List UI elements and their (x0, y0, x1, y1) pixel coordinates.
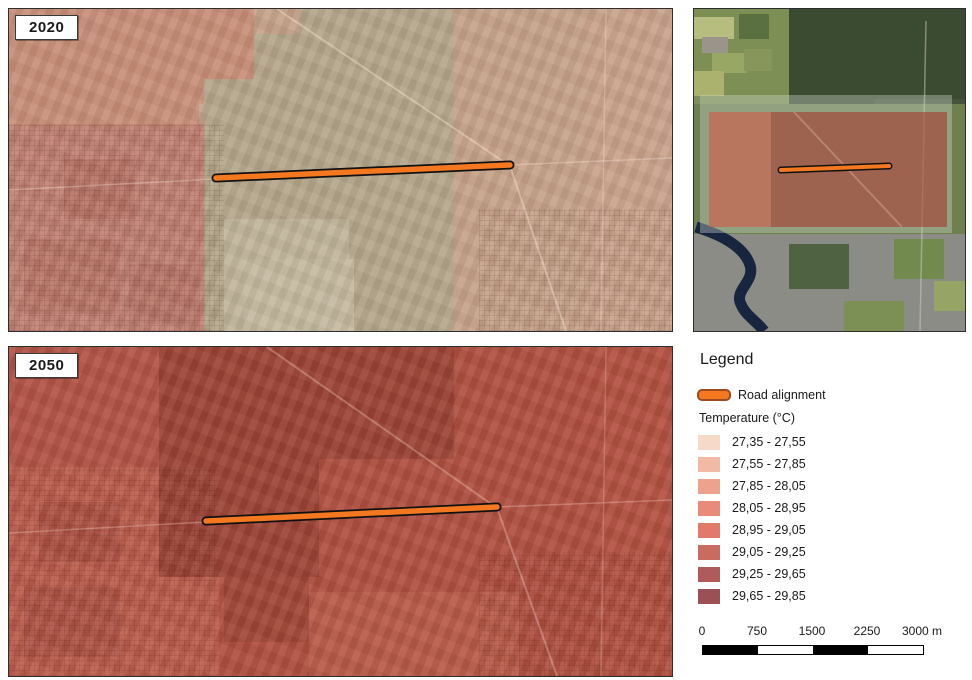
field-patch (694, 71, 724, 96)
green-patch (789, 244, 849, 289)
overview-map (693, 8, 966, 332)
field-patch (694, 17, 734, 39)
temperature-class-list: 27,35 - 27,5527,55 - 27,8527,85 - 28,052… (698, 431, 806, 607)
temperature-range-label: 27,55 - 27,85 (732, 457, 806, 471)
temperature-range-label: 29,25 - 29,65 (732, 567, 806, 581)
scalebar-label: 0 (699, 624, 706, 638)
scalebar-label: 3000 m (902, 624, 942, 638)
temperature-swatch (698, 457, 720, 472)
road-alignment (206, 507, 497, 521)
road-line (601, 9, 606, 331)
legend-class-row: 29,05 - 29,25 (698, 541, 806, 563)
legend-road-row: Road alignment (697, 388, 826, 402)
legend-class-row: 27,85 - 28,05 (698, 475, 806, 497)
scalebar-label: 2250 (854, 624, 881, 638)
scalebar-segment (703, 646, 758, 654)
map-year-label-2050: 2050 (15, 353, 78, 378)
scalebar-segment (813, 646, 868, 654)
temperature-swatch (698, 589, 720, 604)
field-patch (844, 301, 904, 331)
field-patch (739, 14, 769, 39)
temperature-swatch (698, 501, 720, 516)
temperature-swatch (698, 567, 720, 582)
temperature-range-label: 29,05 - 29,25 (732, 545, 806, 559)
road-alignment-symbol (697, 389, 731, 401)
temperature-section-label: Temperature (°C) (699, 411, 795, 425)
legend-class-row: 28,95 - 29,05 (698, 519, 806, 541)
overview-map-layer (694, 9, 965, 331)
field-patch (934, 281, 965, 311)
temperature-range-label: 27,85 - 28,05 (732, 479, 806, 493)
legend-class-row: 27,55 - 27,85 (698, 453, 806, 475)
scalebar-label: 750 (747, 624, 767, 638)
road-alignment (216, 165, 510, 178)
map-2020: 2020 (8, 8, 673, 332)
figure-canvas: 2020 (0, 0, 972, 680)
field-patch (712, 53, 747, 73)
legend-class-row: 29,65 - 29,85 (698, 585, 806, 607)
map-year-label-2020: 2020 (15, 15, 78, 40)
temperature-swatch (698, 545, 720, 560)
legend-title: Legend (700, 351, 753, 369)
study-area-urban-tint (709, 112, 771, 227)
temperature-range-label: 28,95 - 29,05 (732, 523, 806, 537)
legend-class-row: 29,25 - 29,65 (698, 563, 806, 585)
scalebar-label: 1500 (799, 624, 826, 638)
temperature-range-label: 27,35 - 27,55 (732, 435, 806, 449)
field-patch (744, 49, 772, 71)
road-alignment-label: Road alignment (738, 388, 826, 402)
green-patch (894, 239, 944, 279)
map-2050-roads-layer (9, 347, 672, 676)
scalebar-segment (758, 646, 813, 654)
temperature-swatch (698, 479, 720, 494)
temperature-swatch (698, 523, 720, 538)
scalebar-labels: 0750150022503000 m (702, 624, 922, 639)
map-2020-roads-layer (9, 9, 672, 331)
legend-class-row: 28,05 - 28,95 (698, 497, 806, 519)
map-2050: 2050 (8, 346, 673, 677)
temperature-range-label: 28,05 - 28,95 (732, 501, 806, 515)
scalebar-bar (702, 645, 924, 655)
legend-class-row: 27,35 - 27,55 (698, 431, 806, 453)
scalebar: 0750150022503000 m (702, 624, 942, 656)
temperature-range-label: 29,65 - 29,85 (732, 589, 806, 603)
road-line (601, 347, 606, 676)
temperature-swatch (698, 435, 720, 450)
legend-panel: Legend Road alignment Temperature (°C) 2… (693, 347, 972, 680)
town-patch (702, 37, 728, 53)
scalebar-segment (868, 646, 923, 654)
